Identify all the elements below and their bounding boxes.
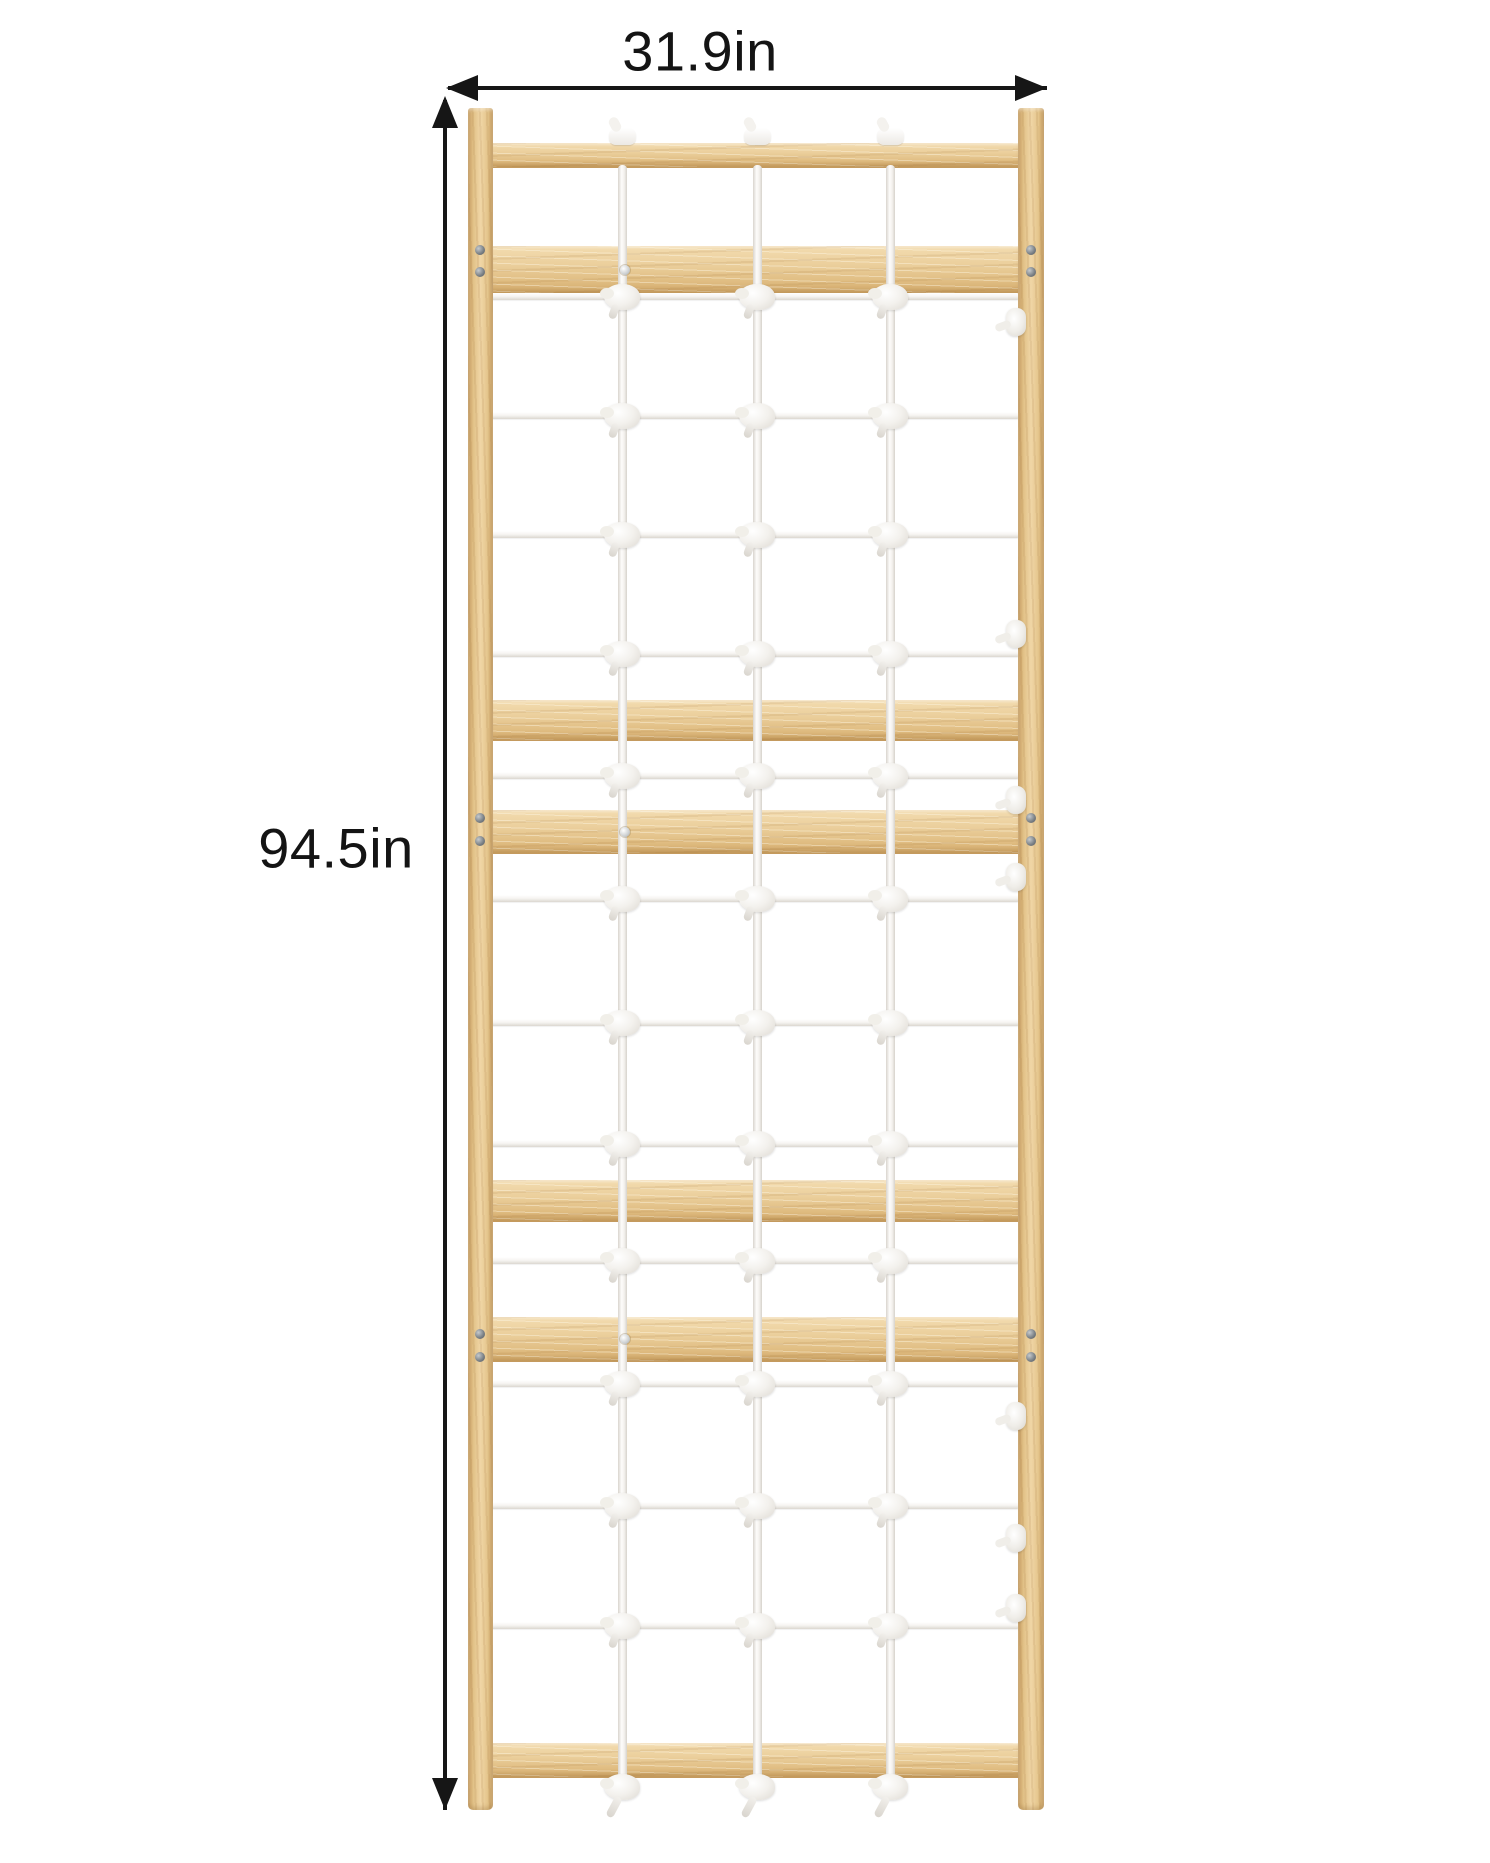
rope-knot: [604, 886, 640, 912]
screw: [620, 1334, 630, 1344]
screw: [475, 267, 485, 277]
rope-knot: [872, 1493, 908, 1519]
screw: [475, 813, 485, 823]
width-dimension-label: 31.9in: [622, 19, 778, 84]
rope-knot: [739, 886, 775, 912]
rope-cleat: [1006, 308, 1026, 336]
rope-knot: [872, 886, 908, 912]
rope-knot: [604, 284, 640, 310]
diagram-canvas: 31.9in 94.5in: [0, 0, 1490, 1863]
left-post: [468, 108, 493, 1810]
rope-end-knot: [739, 1774, 775, 1800]
screw: [1026, 1329, 1036, 1339]
screw: [1026, 1352, 1036, 1362]
rope-knot: [739, 1493, 775, 1519]
height-dimension-line: [443, 100, 447, 1810]
rope-knot: [739, 1248, 775, 1274]
rope-knot: [604, 763, 640, 789]
screw: [1026, 245, 1036, 255]
rope-knot: [604, 1613, 640, 1639]
rope-cleat: [1006, 1594, 1026, 1622]
rope-cleat: [1006, 863, 1026, 891]
right-post: [1018, 108, 1044, 1810]
rope-knot: [604, 522, 640, 548]
rope-knot: [739, 1371, 775, 1397]
rope-knot: [739, 1010, 775, 1036]
screw: [1026, 813, 1036, 823]
screw: [1026, 267, 1036, 277]
arrowhead-down-icon: [432, 1778, 458, 1810]
rope-knot: [604, 1493, 640, 1519]
rope-knot: [604, 403, 640, 429]
arrowhead-right-icon: [1015, 75, 1047, 101]
rope-knot: [604, 1248, 640, 1274]
rope-cleat: [1006, 786, 1026, 814]
screw: [475, 1352, 485, 1362]
screw: [620, 265, 630, 275]
width-dimension-line: [448, 86, 1047, 90]
rope-knot: [739, 763, 775, 789]
rope-knot: [739, 403, 775, 429]
rope-knot: [604, 1371, 640, 1397]
rope-knot: [872, 763, 908, 789]
rope-loop: [744, 128, 771, 145]
rope-cleat: [1006, 1402, 1026, 1430]
rope-knot: [872, 1131, 908, 1157]
rope-knot: [872, 1248, 908, 1274]
arrowhead-up-icon: [432, 96, 458, 128]
rope-end-knot: [604, 1774, 640, 1800]
rope-knot: [739, 284, 775, 310]
rope-loop: [609, 128, 636, 145]
rope-knot: [604, 1010, 640, 1036]
rope-knot: [872, 1371, 908, 1397]
rope-cleat: [1006, 1524, 1026, 1552]
rope-knot: [739, 1613, 775, 1639]
screw: [620, 827, 630, 837]
rope-end-knot: [872, 1774, 908, 1800]
screw: [475, 245, 485, 255]
rope-knot: [604, 641, 640, 667]
rope-knot: [739, 522, 775, 548]
rope-cleat: [1006, 620, 1026, 648]
rope-knot: [604, 1131, 640, 1157]
rope-knot: [872, 641, 908, 667]
rope-knot: [872, 1010, 908, 1036]
height-dimension-label: 94.5in: [258, 816, 414, 881]
rope-knot: [739, 1131, 775, 1157]
rope-knot: [739, 641, 775, 667]
rope-knot: [872, 522, 908, 548]
rope-loop: [877, 128, 904, 145]
rope-knot: [872, 284, 908, 310]
rope-knot: [872, 403, 908, 429]
screw: [475, 836, 485, 846]
screw: [1026, 836, 1036, 846]
screw: [475, 1329, 485, 1339]
rope-knot: [872, 1613, 908, 1639]
